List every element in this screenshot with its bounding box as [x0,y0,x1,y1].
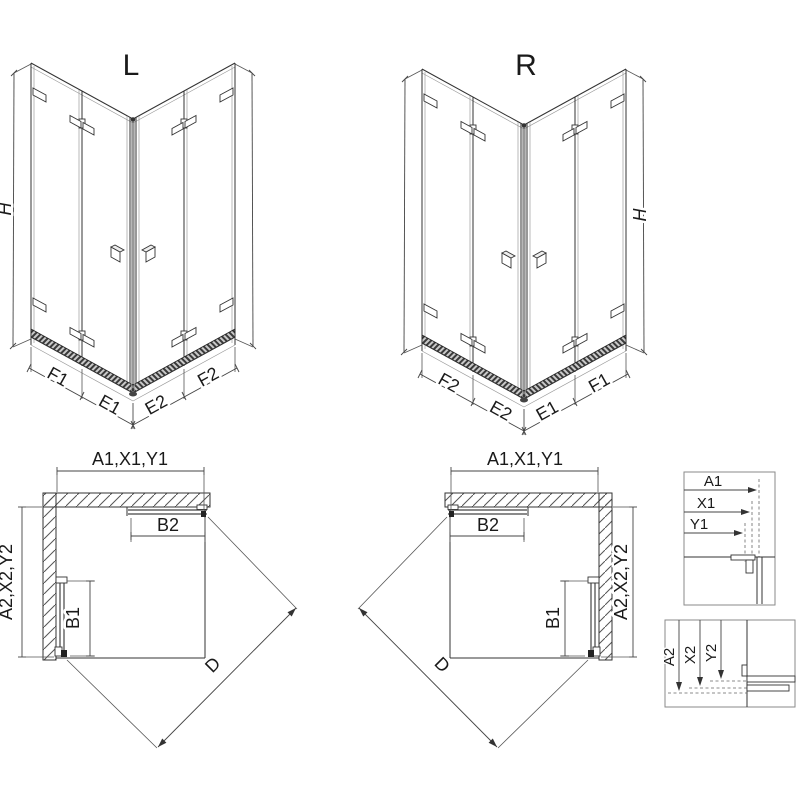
shower-enclosure-drawing: L H F1 E1 E2 F2 R H F2 E2 E1 F1 A1,X1,Y1… [0,0,800,800]
dim-label-door-top: B2 [157,515,179,535]
dim-label-e1: E1 [533,397,562,425]
detail-label-y2: Y2 [703,644,720,662]
dim-label-height: H [630,208,650,222]
wall-top [43,493,210,507]
l-plan-view: A1,X1,Y1 A2,X2,Y2 B2 B1 D [0,449,297,748]
dim-label-e2: E2 [142,391,171,419]
r-3d-view: R H F2 E2 E1 F1 [401,49,650,435]
variant-label-r: R [515,49,537,82]
dim-label-door-side: B1 [63,607,83,629]
detail-label-y1: Y1 [690,516,708,533]
dim-label-door-top: B2 [477,515,499,535]
r-plan-view: A1,X1,Y1 A2,X2,Y2 B2 B1 D [358,449,637,748]
dim-label-door-side: B1 [543,607,563,629]
dim-label-height: H [0,202,15,216]
detail-label-a2: A2 [661,648,678,666]
dim-label-e1: E1 [95,391,124,419]
variant-label-l: L [123,49,140,82]
dim-label-depth-group: A2,X2,Y2 [611,544,631,620]
dim-label-f2: F2 [435,369,463,397]
dim-label-f2: F2 [194,363,222,391]
l-3d-view: L H F1 E1 E2 F2 [0,49,256,429]
detail-label-a1: A1 [704,473,722,490]
dim-label-width-group: A1,X1,Y1 [92,449,168,469]
technical-drawing-page: L H F1 E1 E2 F2 R H F2 E2 E1 F1 A1,X1,Y1… [0,0,800,800]
dim-label-width-group: A1,X1,Y1 [487,449,563,469]
wall-side [43,493,56,660]
detail-label-x1: X1 [697,495,715,512]
detail-box-depth-offsets: A2 X2 Y2 [661,620,795,707]
detail-label-x2: X2 [682,646,699,664]
dim-label-e2: E2 [486,397,515,425]
detail-box-width-offsets: A1 X1 Y1 [684,472,775,605]
dim-label-f1: F1 [585,369,613,397]
dim-label-depth-group: A2,X2,Y2 [0,544,16,620]
dim-label-f1: F1 [44,363,72,391]
wall-top [445,493,612,507]
